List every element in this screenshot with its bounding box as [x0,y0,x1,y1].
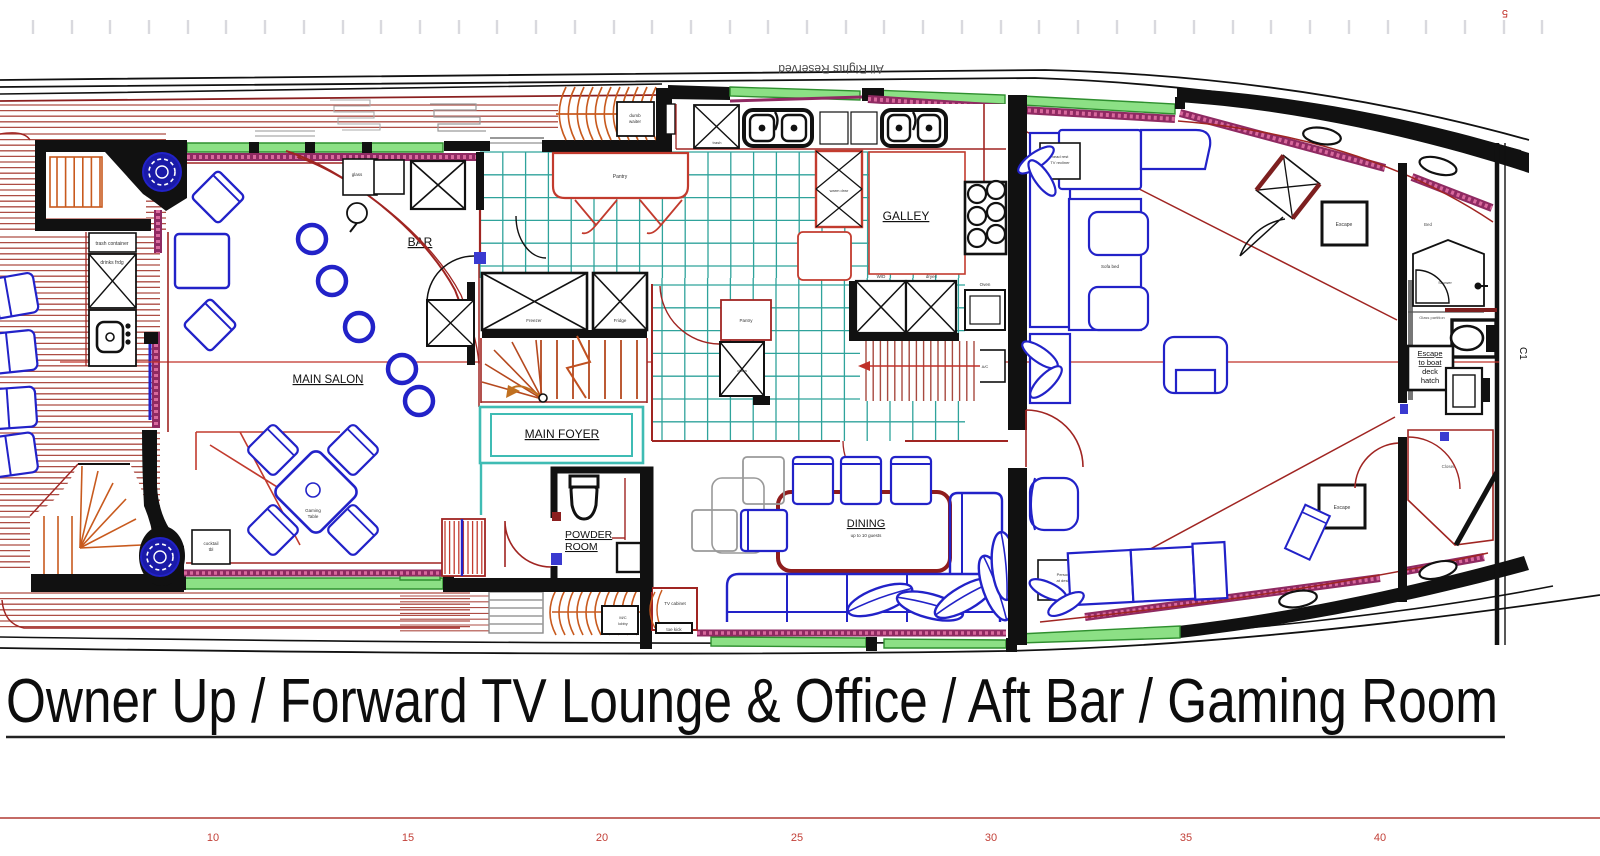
svg-text:Pantry: Pantry [613,174,628,180]
svg-text:MAIN FOYER: MAIN FOYER [525,427,600,441]
svg-text:Freezer: Freezer [526,318,542,323]
svg-text:TV cabinet: TV cabinet [664,601,686,606]
svg-text:All Rights Reserved: All Rights Reserved [778,62,883,76]
svg-text:A/C: A/C [982,364,989,369]
svg-text:drinks frdg: drinks frdg [100,260,124,266]
svg-text:deck: deck [1422,367,1438,376]
svg-text:head rest: head rest [1052,154,1070,159]
svg-text:china: china [737,368,747,373]
svg-text:lobby: lobby [618,621,628,626]
svg-text:cocktail: cocktail [203,541,218,546]
svg-text:Closet: Closet [1442,464,1456,469]
svg-text:trash: trash [713,140,722,145]
svg-text:C1: C1 [1517,347,1528,360]
svg-text:trash container: trash container [95,241,128,247]
svg-text:dryer: dryer [926,274,937,279]
svg-text:Escape: Escape [1336,222,1353,228]
svg-text:Gaming: Gaming [305,508,321,513]
svg-text:25: 25 [791,832,803,844]
svg-text:Escape: Escape [1334,505,1351,511]
svg-text:35: 35 [1180,832,1192,844]
svg-text:toe kick: toe kick [666,627,682,632]
svg-text:M/C: M/C [619,615,626,620]
svg-text:TV recliner: TV recliner [1050,160,1070,165]
svg-text:DINING: DINING [847,518,886,530]
svg-text:warm drwr: warm drwr [830,188,849,193]
svg-text:dumb: dumb [629,113,641,118]
svg-text:ROOM: ROOM [565,541,598,553]
svg-text:glass: glass [352,172,363,177]
svg-text:20: 20 [596,832,608,844]
svg-text:tbl: tbl [209,547,214,552]
svg-text:10: 10 [207,832,219,844]
svg-text:POWDER: POWDER [565,529,613,541]
svg-text:MAIN SALON: MAIN SALON [293,374,364,386]
svg-text:up to 10 guests: up to 10 guests [851,533,883,538]
svg-text:Sofa bed: Sofa bed [1101,264,1120,269]
svg-text:Pantry: Pantry [739,318,753,323]
svg-text:40: 40 [1374,832,1386,844]
svg-text:Bed: Bed [1424,222,1433,227]
svg-text:at desk: at desk [1057,578,1070,583]
svg-text:hatch: hatch [1421,376,1439,385]
svg-text:Person: Person [1057,572,1070,577]
svg-text:Table: Table [308,514,319,519]
svg-text:30: 30 [985,832,997,844]
svg-text:Oven: Oven [980,282,991,287]
svg-text:to boat: to boat [1419,358,1443,367]
svg-text:5: 5 [1502,7,1508,19]
svg-text:Glass partition: Glass partition [1419,315,1445,320]
svg-text:W/D: W/D [877,274,886,279]
svg-text:15: 15 [402,832,414,844]
svg-text:Owner Up / Forward TV Lounge &: Owner Up / Forward TV Lounge & Office / … [6,667,1498,736]
svg-text:waiter: waiter [629,119,642,124]
svg-text:Fridge: Fridge [614,318,627,323]
svg-text:GALLEY: GALLEY [883,209,930,223]
svg-text:Escape: Escape [1417,349,1442,358]
